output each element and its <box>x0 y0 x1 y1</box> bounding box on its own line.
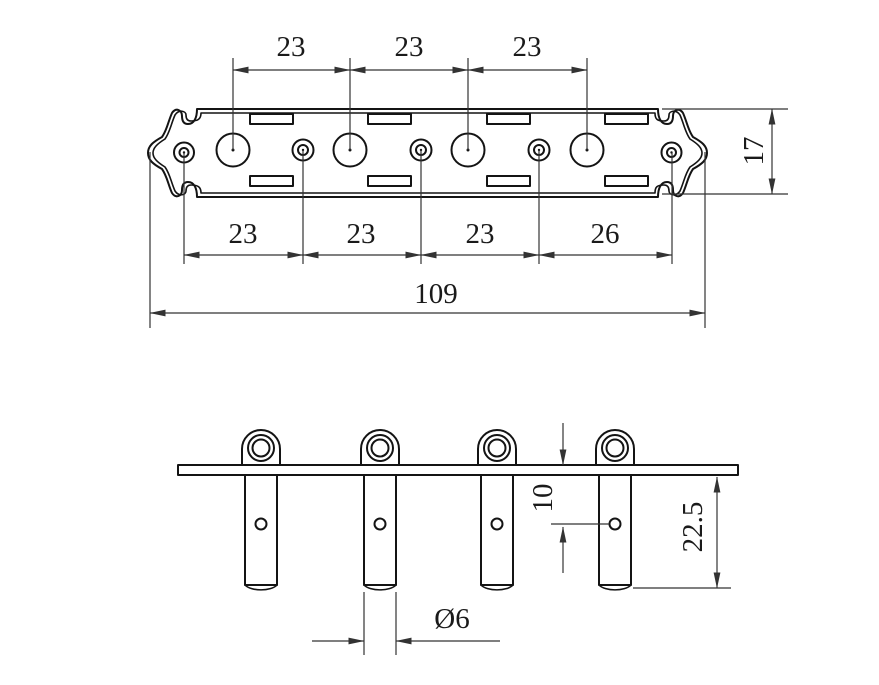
mounting-slot <box>605 114 648 124</box>
mounting-slot <box>605 176 648 186</box>
dim-label-top-pitch-3: 23 <box>513 31 542 63</box>
mounting-slot <box>250 114 293 124</box>
dim-label-bottom-pitch-3: 23 <box>466 218 495 250</box>
dim-label-bottom-pitch-4: 26 <box>591 218 620 250</box>
drawing-canvas: 23 23 23 23 23 23 26 109 17 <box>0 0 879 685</box>
eyelet-hole <box>489 440 506 457</box>
plate-bar <box>178 465 738 475</box>
eyelet-hole <box>372 440 389 457</box>
mounting-slot <box>250 176 293 186</box>
dim-label-overall-length: 109 <box>414 278 458 310</box>
mounting-slot <box>368 176 411 186</box>
dim-label-post-length: 22.5 <box>677 502 709 553</box>
post-string-hole <box>256 519 267 530</box>
dim-label-top-pitch-1: 23 <box>277 31 306 63</box>
side-object-lines <box>178 430 738 590</box>
side-view-dimension-lines <box>312 423 731 655</box>
dim-label-post-diameter: Ø6 <box>434 603 469 635</box>
post-string-hole <box>610 519 621 530</box>
post-string-hole <box>492 519 503 530</box>
plate-outer-contour <box>148 109 707 197</box>
top-view: 23 23 23 23 23 23 26 109 17 <box>148 31 788 328</box>
dim-label-top-pitch-2: 23 <box>395 31 424 63</box>
mounting-slot <box>487 114 530 124</box>
post-string-hole <box>375 519 386 530</box>
side-view-dimension-labels: 10 22.5 Ø6 <box>434 484 709 636</box>
mounting-slot <box>487 176 530 186</box>
hole-center-dots <box>183 149 673 154</box>
dim-label-hole-offset: 10 <box>527 484 559 513</box>
technical-drawing-page: 23 23 23 23 23 23 26 109 17 <box>0 0 879 685</box>
side-view: 10 22.5 Ø6 <box>178 423 738 655</box>
dim-label-bottom-pitch-2: 23 <box>347 218 376 250</box>
mounting-slot <box>368 114 411 124</box>
dim-label-plate-width: 17 <box>738 137 770 166</box>
plate-object-lines <box>148 109 707 197</box>
eyelet-hole <box>253 440 270 457</box>
dim-label-bottom-pitch-1: 23 <box>229 218 258 250</box>
eyelet-hole <box>607 440 624 457</box>
